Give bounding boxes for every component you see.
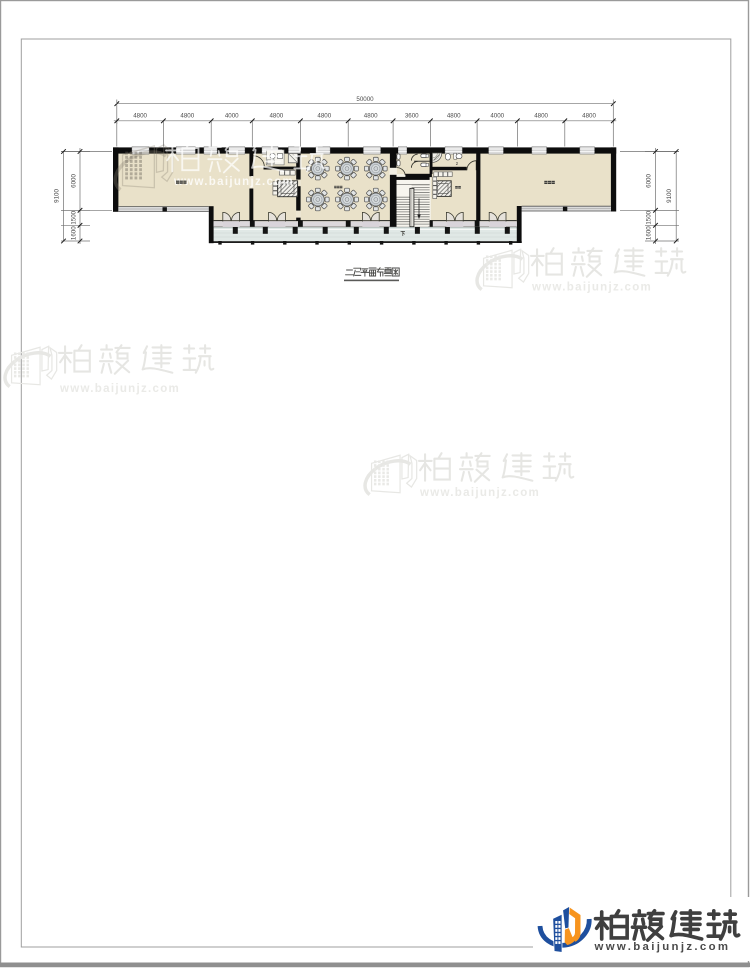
svg-text:50000: 50000 <box>356 96 374 103</box>
svg-text:4800: 4800 <box>582 112 596 119</box>
svg-text:4800: 4800 <box>180 112 194 119</box>
svg-text:3600: 3600 <box>405 112 419 119</box>
svg-text:1600: 1600 <box>71 226 78 240</box>
svg-text:www.baijunjz.com: www.baijunjz.com <box>173 176 294 188</box>
svg-text:1500: 1500 <box>646 210 653 224</box>
svg-text:4800: 4800 <box>447 112 461 119</box>
svg-text:www.baijunjz.com: www.baijunjz.com <box>594 941 731 953</box>
svg-text:www.baijunjz.com: www.baijunjz.com <box>419 487 540 499</box>
svg-text:4800: 4800 <box>269 112 283 119</box>
svg-text:www.baijunjz.com: www.baijunjz.com <box>59 383 180 395</box>
svg-text:4000: 4000 <box>225 112 239 119</box>
svg-text:4800: 4800 <box>317 112 331 119</box>
svg-text:4800: 4800 <box>364 112 378 119</box>
svg-text:4800: 4800 <box>534 112 548 119</box>
svg-text:6000: 6000 <box>71 174 78 188</box>
svg-text:9100: 9100 <box>666 189 673 203</box>
svg-text:1600: 1600 <box>646 226 653 240</box>
svg-text:1500: 1500 <box>71 210 78 224</box>
svg-text:4000: 4000 <box>490 112 504 119</box>
svg-text:6000: 6000 <box>646 174 653 188</box>
svg-text:9100: 9100 <box>54 189 61 203</box>
svg-text:4800: 4800 <box>133 112 147 119</box>
svg-text:www.baijunjz.com: www.baijunjz.com <box>531 282 652 294</box>
